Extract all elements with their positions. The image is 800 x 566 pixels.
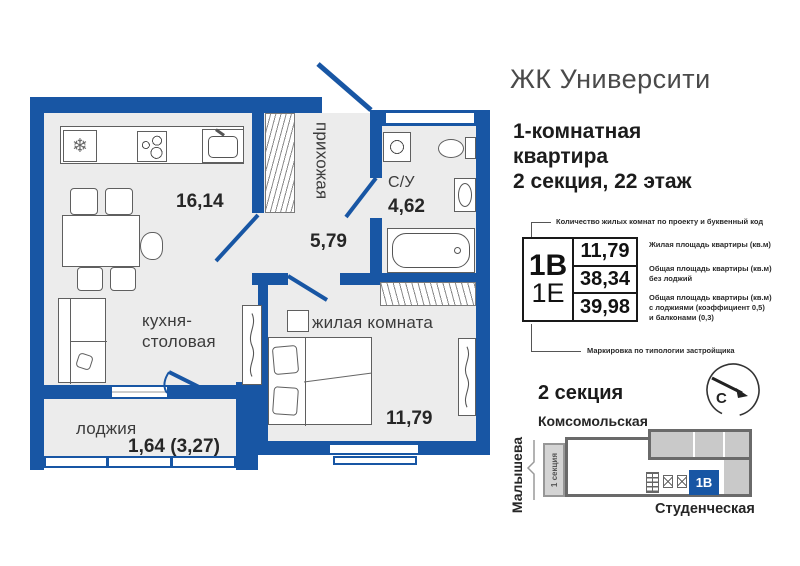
elevator-icon [663,475,673,488]
section-1-label: 1 секция [550,453,559,487]
site-map-title: 2 секция [538,382,623,405]
apartment-code-alt: 1Е [531,280,564,307]
highlighted-unit-1b: 1В [689,470,719,495]
stairs-icon [646,472,659,493]
street-studencheskaya: Студенческая [655,501,755,517]
area-value-total: 38,34 [574,267,636,295]
elevator-icon [677,475,687,488]
apartment-floorplan: ❄ [30,60,490,470]
floorplan-page: ❄ [0,0,800,566]
unit-divider [723,432,725,457]
apartment-title: 1-комнатная квартира 2 секция, 22 этаж [513,120,692,194]
kitchen-label: кухня- столовая [142,310,216,353]
living-area: 11,79 [386,408,433,430]
apartment-code-main: 1В [529,252,567,281]
living-label: жилая комната [312,312,433,333]
road-mark [526,440,542,500]
legend-row3-label: Общая площадь квартиры (кв.м) с лоджиями… [649,293,799,322]
apartment-legend-box: 1В 1Е 11,79 38,34 39,98 [522,237,638,322]
legend-row2-label: Общая площадь квартиры (кв.м) без лоджий [649,264,799,284]
loggia-area: 1,64 (3,27) [128,436,220,458]
area-value-total-loggia: 39,98 [574,294,636,320]
street-komsomolskaya: Комсомольская [538,413,648,429]
kitchen-area: 16,14 [176,191,224,213]
apartment-areas: 11,79 38,34 39,98 [572,239,636,320]
building-top-units [648,429,752,460]
street-malysheva: Малышева [509,436,525,514]
compass-icon [696,360,772,424]
legend-bottom-note: Маркировка по типологии застройщика [587,346,800,356]
bathroom-area: 4,62 [388,196,425,218]
hallway-area: 5,79 [310,231,347,253]
legend-top-note: Количество жилых комнат по проекту и бук… [556,217,800,227]
legend-row1-label: Жилая площадь квартиры (кв.м) [649,240,799,250]
building-right-units [722,460,749,494]
area-value-living: 11,79 [574,239,636,267]
unit-divider [693,432,695,457]
section-1-strip: 1 секция [543,443,565,497]
hallway-label: прихожая [311,122,332,222]
compass-north-letter: С [716,390,727,407]
legend-bottom-leader [531,324,581,352]
apartment-codes: 1В 1Е [524,239,572,320]
project-title: ЖК Университи [510,64,711,95]
legend-top-leader [531,222,551,237]
bathroom-label: С/У [388,173,415,193]
